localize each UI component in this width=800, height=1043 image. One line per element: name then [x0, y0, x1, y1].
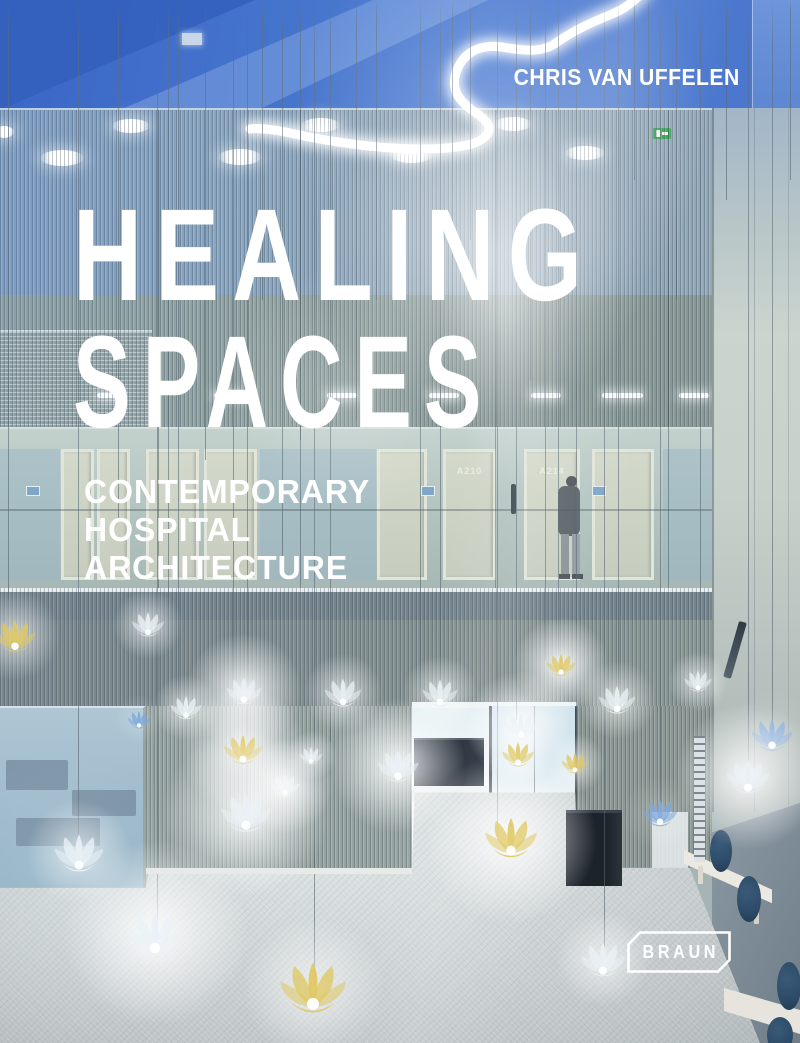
- pendant-lamp: [0, 615, 42, 657]
- title-line-1: HEALING: [73, 189, 595, 320]
- led-strip: [694, 736, 705, 862]
- pendant-lamp: [542, 650, 580, 680]
- subtitle: CONTEMPORARY HOSPITAL ARCHITECTURE: [84, 473, 370, 587]
- pendant-lamp: [127, 608, 169, 641]
- pendant-lamp: [213, 787, 279, 838]
- title-line-2: SPACES: [73, 316, 493, 447]
- pendant-lamp: [124, 708, 154, 731]
- pendant-lamp: [118, 905, 192, 963]
- pendant-lamp: [477, 811, 545, 864]
- author-name: CHRIS VAN UFFELEN: [514, 64, 740, 91]
- subtitle-line-2: HOSPITAL: [84, 511, 370, 549]
- subtitle-line-1: CONTEMPORARY: [84, 473, 370, 511]
- pendant-lamp: [270, 954, 356, 1021]
- pendant-lamp: [680, 667, 716, 695]
- book-cover: A210A214 CHR: [0, 0, 800, 1043]
- pendant-lamp: [719, 754, 777, 799]
- pendant-lamp: [574, 937, 632, 982]
- publisher-name: BRAUN: [632, 931, 726, 973]
- pendant-lamp: [593, 681, 641, 718]
- subtitle-line-3: ARCHITECTURE: [84, 549, 370, 587]
- publisher-logo: BRAUN: [627, 931, 731, 973]
- pendant-lamp: [371, 745, 425, 787]
- pendant-lamp: [637, 795, 683, 831]
